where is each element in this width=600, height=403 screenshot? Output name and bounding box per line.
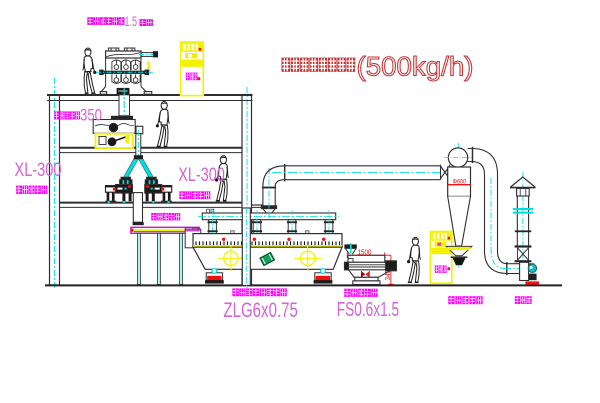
svg-text:1.5: 1.5 <box>125 13 138 29</box>
svg-text:XL-300: XL-300 <box>178 164 225 186</box>
svg-text:ZLG6x0.75: ZLG6x0.75 <box>223 299 298 322</box>
svg-text:FS0.6x1.5: FS0.6x1.5 <box>337 299 399 321</box>
svg-text:350: 350 <box>80 106 102 125</box>
svg-text:Φ600: Φ600 <box>453 179 467 186</box>
svg-text:(500kg/h): (500kg/h) <box>357 52 474 82</box>
svg-text:XL-300: XL-300 <box>15 159 62 181</box>
